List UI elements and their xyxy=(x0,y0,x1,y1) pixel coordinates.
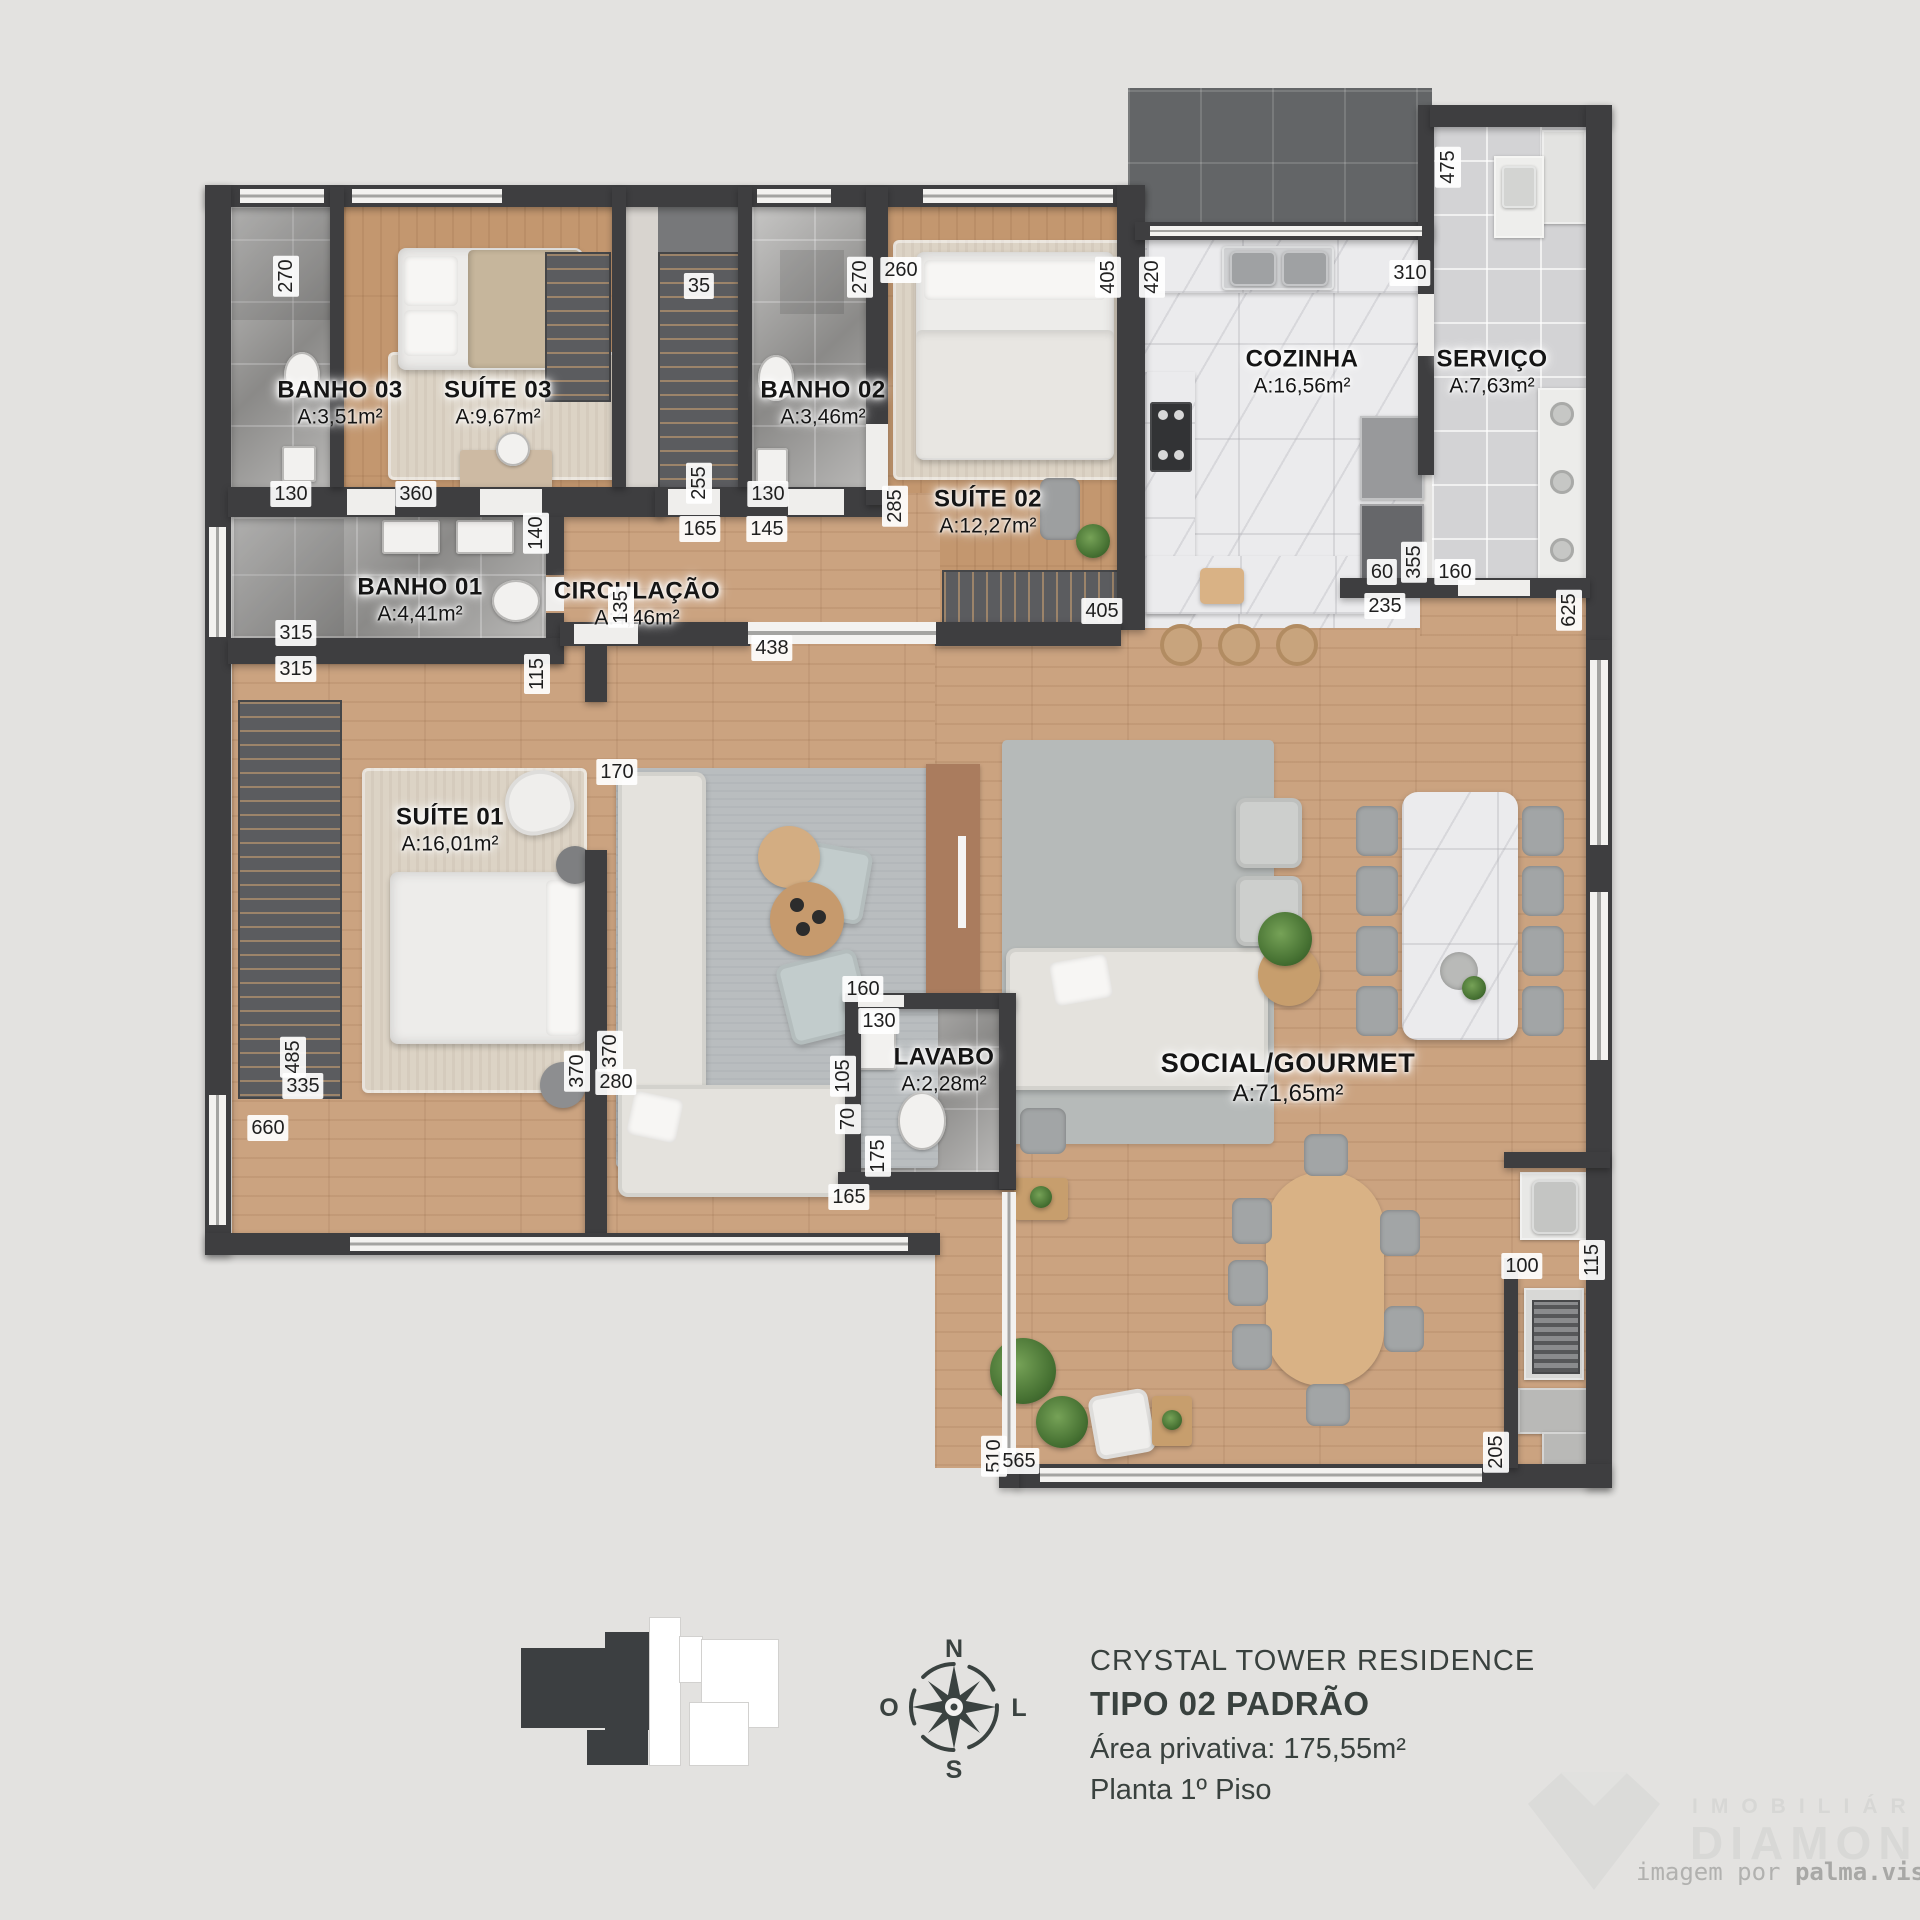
keyplan xyxy=(515,1615,780,1775)
coffee-cup-icon-3 xyxy=(796,922,810,936)
plan-info: CRYSTAL TOWER RESIDENCE TIPO 02 PADRÃO Á… xyxy=(1090,1645,1535,1807)
door-banho03 xyxy=(347,489,395,515)
room-label: BANHO 02 A:3,46m² xyxy=(760,377,885,430)
dimension-label: 235 xyxy=(1364,593,1405,619)
room-area: A:4,41m² xyxy=(357,603,482,627)
door-suite03 xyxy=(480,489,542,515)
compass-west-label: O xyxy=(879,1694,898,1722)
reading-table-plant xyxy=(1162,1410,1182,1430)
dimension-label: 105 xyxy=(830,1055,856,1096)
kitchen-sink-basin xyxy=(1230,251,1276,286)
gourmet-chair-right2 xyxy=(1384,1306,1424,1352)
room-label: SERVIÇO A:7,63m² xyxy=(1436,346,1547,399)
door-banho02 xyxy=(788,489,844,515)
room-area: A:4,46m² xyxy=(554,607,720,631)
dimension-label: 405 xyxy=(1095,256,1121,297)
wall-right-upper xyxy=(1586,105,1612,640)
dimension-label: 115 xyxy=(1579,1240,1605,1280)
room-label: LAVABO A:2,28m² xyxy=(894,1044,995,1097)
wall-suite02-right xyxy=(1117,185,1145,630)
dimension-label: 438 xyxy=(751,635,792,661)
bbq-l-counter xyxy=(1518,1388,1588,1434)
window-social-bottom xyxy=(1040,1468,1482,1482)
compass-east-label: L xyxy=(1011,1694,1026,1722)
closet-niche-floor xyxy=(626,207,660,487)
social-plant xyxy=(1258,912,1312,966)
window-banho02 xyxy=(757,189,831,203)
burner-icon-2 xyxy=(1174,410,1184,420)
dimension-label: 160 xyxy=(842,976,883,1002)
room-area: A:3,46m² xyxy=(760,406,885,430)
dimension-label: 130 xyxy=(858,1008,899,1034)
window-right-lower xyxy=(1590,892,1608,1060)
watermark-credit: imagem por palma.vis xyxy=(1636,1858,1920,1886)
fridge-icon xyxy=(1360,416,1424,500)
room-name: LAVABO xyxy=(894,1044,995,1072)
banho01-sink-icon xyxy=(382,520,440,554)
dimension-label: 335 xyxy=(282,1073,323,1099)
dining-chair-l4 xyxy=(1356,986,1398,1036)
compass-south-label: S xyxy=(946,1756,963,1784)
room-name: SOCIAL/GOURMET xyxy=(1161,1048,1416,1079)
floor-plant-large xyxy=(990,1338,1056,1404)
banho01-shower-area xyxy=(234,519,344,636)
dimension-label: 135 xyxy=(608,586,634,627)
gourmet-chair-left3 xyxy=(1232,1324,1272,1370)
burner-icon-4 xyxy=(1174,450,1184,460)
lavabo-toilet-icon xyxy=(898,1092,946,1150)
room-label: SUÍTE 02 A:12,27m² xyxy=(934,486,1042,539)
suite02-pillow-band xyxy=(924,260,1106,300)
window-right-upper xyxy=(1590,660,1608,845)
dimension-label: 115 xyxy=(524,654,550,694)
dimension-label: 660 xyxy=(247,1115,288,1141)
compass-rose: N S L O xyxy=(877,1630,1032,1785)
bbq-l-counter-2 xyxy=(1542,1432,1588,1468)
room-name: SUÍTE 03 xyxy=(444,377,552,405)
dining-chair-r4 xyxy=(1522,986,1564,1036)
bar-stool-2 xyxy=(1218,624,1260,666)
banho01-toilet-icon xyxy=(492,580,540,622)
dimension-label: 140 xyxy=(523,512,549,553)
dimension-label: 280 xyxy=(595,1069,636,1095)
burner-icon xyxy=(1158,410,1168,420)
dimension-label: 130 xyxy=(747,481,788,507)
terrace-floor xyxy=(1128,88,1432,236)
room-area: A:9,67m² xyxy=(444,406,552,430)
wall-suite03-right xyxy=(612,187,626,487)
banho02-floor xyxy=(752,205,868,489)
dimension-label: 165 xyxy=(828,1184,869,1210)
project-title: CRYSTAL TOWER RESIDENCE xyxy=(1090,1645,1535,1678)
dimension-label: 475 xyxy=(1435,146,1461,187)
room-label: SUÍTE 01 A:16,01m² xyxy=(396,804,504,857)
side-table-plant xyxy=(1030,1186,1052,1208)
dimension-label: 310 xyxy=(1389,260,1430,286)
window-banho01 xyxy=(209,527,226,637)
room-name: BANHO 03 xyxy=(277,377,402,405)
floor-plan: BANHO 03 A:3,51m² SUÍTE 03 A:9,67m² BANH… xyxy=(0,0,1920,1920)
dimension-label: 315 xyxy=(275,620,316,646)
wall-servico-left xyxy=(1418,105,1434,475)
wall-suite01-right-upper xyxy=(585,646,607,702)
dimension-label: 270 xyxy=(273,255,299,296)
dimension-label: 370 xyxy=(597,1030,623,1071)
dimension-label: 485 xyxy=(280,1036,306,1077)
floor-plant-small xyxy=(1036,1396,1088,1448)
room-label: BANHO 01 A:4,41m² xyxy=(357,574,482,627)
room-area: A:12,27m² xyxy=(934,515,1042,539)
wall-top-right xyxy=(1430,105,1612,127)
keyplan-building-outline xyxy=(650,1618,680,1765)
wall-banho03-right xyxy=(330,187,344,487)
living-coffee-table-2 xyxy=(770,882,844,956)
dimension-label: 355 xyxy=(1401,541,1427,582)
washer-icon-3 xyxy=(1550,538,1574,562)
room-name: BANHO 01 xyxy=(357,574,482,602)
dimension-label: 360 xyxy=(395,481,436,507)
living-coffee-table xyxy=(758,826,820,888)
washer-icon xyxy=(1550,402,1574,426)
dimension-label: 285 xyxy=(882,485,908,526)
dimension-label: 420 xyxy=(1139,256,1165,297)
room-label: CIRCULAÇÃO A:4,46m² xyxy=(554,578,720,631)
kitchen-sink-basin-2 xyxy=(1282,251,1328,286)
window-suite03 xyxy=(352,189,502,203)
wall-banho02-left xyxy=(738,187,752,487)
suite02-bench xyxy=(1040,478,1080,540)
cutting-board-icon xyxy=(1200,568,1244,604)
dimension-label: 170 xyxy=(596,759,637,785)
grill-icon xyxy=(1532,1300,1580,1374)
unit-type: TIPO 02 PADRÃO xyxy=(1090,1685,1535,1723)
dimension-label: 260 xyxy=(880,257,921,283)
dimension-label: 100 xyxy=(1501,1253,1542,1279)
dining-chair-r3 xyxy=(1522,926,1564,976)
window-banho03 xyxy=(240,189,324,203)
dimension-label: 255 xyxy=(686,462,712,503)
reading-armchair xyxy=(1087,1387,1157,1460)
credit-brand: palma.vis xyxy=(1795,1858,1920,1886)
door-servico xyxy=(1418,294,1434,356)
gourmet-oval-table xyxy=(1266,1172,1384,1386)
wall-bbq-top xyxy=(1504,1152,1610,1168)
washer-icon-2 xyxy=(1550,470,1574,494)
dimension-label: 405 xyxy=(1081,598,1122,624)
bar-stool xyxy=(1160,624,1202,666)
room-area: A:71,65m² xyxy=(1161,1080,1416,1108)
room-name: SUÍTE 02 xyxy=(934,486,1042,514)
room-label: BANHO 03 A:3,51m² xyxy=(277,377,402,430)
suite03-pillow xyxy=(404,256,458,306)
dimension-label: 145 xyxy=(746,516,787,542)
coffee-cup-icon xyxy=(790,898,804,912)
dimension-label: 205 xyxy=(1483,1431,1509,1472)
room-name: CIRCULAÇÃO xyxy=(554,578,720,606)
room-name: BANHO 02 xyxy=(760,377,885,405)
dining-chair-l3 xyxy=(1356,926,1398,976)
window-kitchen xyxy=(1150,226,1422,236)
social-pouf xyxy=(1020,1108,1066,1154)
suite03-desk-chair xyxy=(496,432,530,466)
room-area: A:7,63m² xyxy=(1436,375,1547,399)
dimension-label: 160 xyxy=(1434,559,1475,585)
banho03-sink-icon xyxy=(282,446,316,482)
window-suite01-left xyxy=(209,1095,226,1225)
keyplan-building-outline-2 xyxy=(680,1637,702,1682)
room-label: SUÍTE 03 A:9,67m² xyxy=(444,377,552,430)
dimension-label: 130 xyxy=(270,481,311,507)
coffee-cup-icon-2 xyxy=(812,910,826,924)
dimension-label: 370 xyxy=(564,1050,590,1091)
wall-lavabo-right xyxy=(999,993,1016,1189)
servico-cabinet-top xyxy=(1542,130,1586,224)
room-area: A:2,28m² xyxy=(894,1073,995,1097)
credit-prefix: imagem por xyxy=(1636,1858,1795,1886)
room-area: A:16,56m² xyxy=(1246,375,1359,399)
dining-chair-l2 xyxy=(1356,866,1398,916)
dimension-label: 175 xyxy=(865,1135,891,1176)
servico-sink-basin xyxy=(1502,166,1536,208)
tv-icon xyxy=(958,836,966,928)
dimension-label: 165 xyxy=(679,516,720,542)
gourmet-chair-bottom xyxy=(1306,1384,1350,1426)
room-name: SUÍTE 01 xyxy=(396,804,504,832)
gourmet-chair-left1 xyxy=(1232,1198,1272,1244)
room-name: COZINHA xyxy=(1246,346,1359,374)
room-label: COZINHA A:16,56m² xyxy=(1246,346,1359,399)
wall-circulation-bottom-b xyxy=(935,622,1121,646)
room-name: SERVIÇO xyxy=(1436,346,1547,374)
table-plant xyxy=(1462,976,1486,1000)
dining-table xyxy=(1402,792,1518,1040)
keyplan-unit-highlight xyxy=(521,1648,607,1728)
suite01-pillow-band xyxy=(546,880,580,1036)
keyplan-unit-highlight-2 xyxy=(605,1632,649,1730)
dimension-label: 625 xyxy=(1556,589,1582,630)
gourmet-chair-left2 xyxy=(1228,1260,1268,1306)
suite03-pillow-2 xyxy=(404,310,458,356)
dimension-label: 60 xyxy=(1367,559,1397,585)
dimension-label: 270 xyxy=(847,256,873,297)
window-suite02 xyxy=(923,189,1113,203)
window-social-left xyxy=(1002,1192,1016,1454)
banho02-sink-icon xyxy=(756,448,788,484)
bar-stool-3 xyxy=(1276,624,1318,666)
door-suite02 xyxy=(866,424,888,490)
room-label: SOCIAL/GOURMET A:71,65m² xyxy=(1161,1048,1416,1108)
window-suite01-bottom xyxy=(350,1237,908,1251)
dimension-label: 70 xyxy=(835,1104,861,1134)
banho01-sink-icon-2 xyxy=(456,520,514,554)
banho02-shower-area xyxy=(780,250,844,314)
gourmet-chair-right1 xyxy=(1380,1210,1420,1256)
cooktop-icon xyxy=(1150,402,1192,472)
gourmet-chair-top xyxy=(1304,1134,1348,1176)
suite02-blanket xyxy=(916,330,1114,458)
room-area: A:16,01m² xyxy=(396,833,504,857)
dimension-label: 565 xyxy=(998,1448,1039,1474)
private-area: Área privativa: 175,55m² xyxy=(1090,1733,1535,1766)
dining-chair-l1 xyxy=(1356,806,1398,856)
floor-plan-page: { "meta": { "colors": { "wall": "#3e3e40… xyxy=(0,0,1920,1920)
room-area: A:3,51m² xyxy=(277,406,402,430)
dining-chair-r1 xyxy=(1522,806,1564,856)
dining-chair-r2 xyxy=(1522,866,1564,916)
keyplan-building-outline-4 xyxy=(690,1703,748,1765)
compass-north-label: N xyxy=(945,1635,963,1663)
social-armchair xyxy=(1236,798,1302,868)
tv-panel xyxy=(926,764,980,1004)
dimension-label: 35 xyxy=(684,273,714,299)
bbq-sink-icon xyxy=(1532,1180,1578,1234)
floor-number: Planta 1º Piso xyxy=(1090,1774,1535,1807)
burner-icon-3 xyxy=(1158,450,1168,460)
keyplan-unit-highlight-3 xyxy=(587,1730,648,1765)
kitchen-island-horizontal xyxy=(1145,556,1373,614)
suite02-plant xyxy=(1076,524,1110,558)
dimension-label: 315 xyxy=(275,656,316,682)
suite03-wardrobe xyxy=(545,252,611,402)
